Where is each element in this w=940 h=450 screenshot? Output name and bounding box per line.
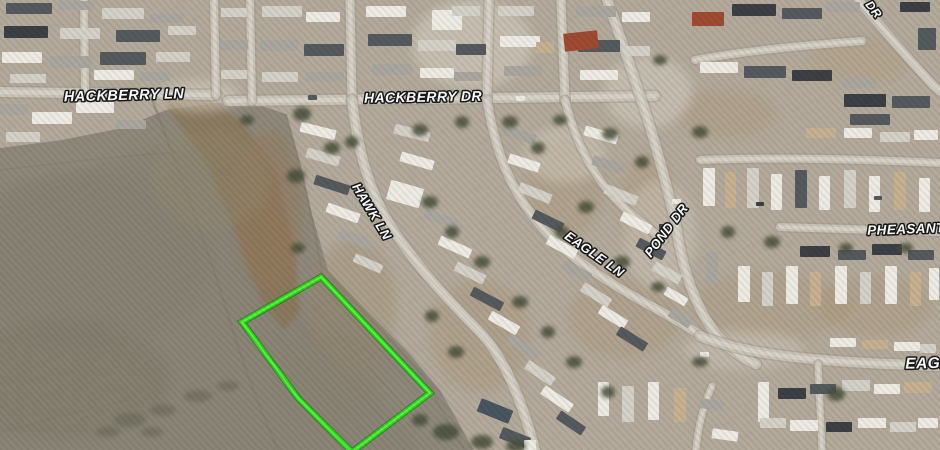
building	[894, 172, 906, 210]
building	[700, 352, 709, 357]
building	[58, 1, 94, 10]
building	[0, 104, 28, 115]
building	[762, 272, 773, 306]
building	[622, 12, 650, 22]
tree	[240, 115, 254, 125]
map-viewport[interactable]: HACKBERRY LNHACKBERRY DRHAWK LNEAGLE LNP…	[0, 0, 940, 450]
building	[6, 3, 52, 14]
building	[220, 40, 248, 50]
building	[914, 130, 938, 140]
building	[100, 52, 146, 65]
building	[308, 95, 317, 100]
building	[904, 382, 932, 393]
building	[732, 4, 776, 16]
building	[60, 28, 100, 39]
building	[725, 172, 736, 208]
building	[786, 266, 798, 304]
building	[860, 272, 871, 304]
building	[756, 202, 764, 206]
building	[94, 70, 134, 80]
building	[504, 66, 542, 76]
building	[221, 8, 247, 17]
building	[102, 8, 144, 19]
street-label-hackberry-dr: HACKBERRY DR	[364, 88, 483, 106]
building	[819, 176, 830, 210]
tree	[566, 356, 582, 368]
building	[536, 42, 554, 53]
tree	[827, 387, 845, 401]
scrub-brush	[150, 404, 176, 416]
building	[842, 78, 876, 88]
tree	[512, 296, 528, 308]
tree	[445, 226, 459, 238]
street-label-hackberry-ln: HACKBERRY LN	[64, 86, 185, 105]
v-252-core	[250, 0, 252, 101]
tree	[287, 169, 305, 183]
building	[116, 120, 146, 129]
scrub-brush	[114, 413, 146, 427]
tree	[293, 107, 311, 121]
tree	[324, 142, 340, 154]
building	[420, 68, 454, 78]
building	[858, 418, 886, 428]
building	[563, 30, 599, 51]
building	[850, 114, 890, 125]
tree	[692, 126, 708, 138]
building	[703, 168, 715, 206]
tree	[653, 55, 667, 65]
building	[900, 2, 930, 12]
building	[304, 44, 344, 56]
tree	[345, 136, 359, 148]
building	[920, 344, 936, 353]
building	[929, 268, 939, 300]
tree	[839, 243, 853, 253]
building	[844, 170, 856, 208]
building	[872, 244, 902, 255]
left-stub-1-core	[84, 0, 85, 92]
tree	[455, 116, 469, 128]
building	[790, 420, 818, 431]
building	[456, 44, 486, 55]
building	[700, 62, 738, 73]
tree	[721, 226, 735, 238]
building	[874, 196, 882, 200]
scrub-brush	[184, 390, 212, 402]
hawk-top-core	[350, 0, 352, 100]
building	[372, 64, 412, 75]
building	[792, 70, 832, 81]
building	[306, 12, 340, 22]
building	[2, 52, 42, 63]
building	[892, 96, 930, 108]
tree	[474, 256, 490, 268]
building	[744, 66, 786, 78]
building	[262, 6, 302, 17]
building	[880, 132, 910, 142]
building	[580, 70, 618, 80]
building	[624, 46, 650, 56]
building	[648, 382, 659, 420]
scrub-brush	[217, 381, 239, 391]
building	[260, 40, 298, 51]
building	[366, 6, 406, 17]
building	[844, 94, 886, 107]
tree	[425, 310, 439, 322]
street-label-eagle: EAGLE	[905, 355, 940, 373]
building	[10, 74, 46, 83]
building	[771, 174, 782, 210]
tree	[553, 115, 567, 125]
tree	[412, 124, 428, 136]
building	[894, 342, 920, 351]
building	[806, 128, 836, 138]
building	[844, 128, 872, 138]
building	[368, 34, 412, 46]
building	[221, 70, 247, 79]
tree	[602, 128, 618, 140]
eagle-top-core	[487, 0, 489, 100]
building	[810, 272, 821, 306]
building	[885, 266, 897, 304]
building	[890, 422, 916, 432]
building	[32, 112, 72, 124]
building	[706, 252, 718, 284]
building	[826, 2, 860, 12]
building	[919, 178, 930, 212]
scrub-brush	[141, 427, 163, 437]
tree	[422, 196, 438, 208]
building	[50, 56, 92, 68]
satellite-map-canvas[interactable]: HACKBERRY LNHACKBERRY DRHAWK LNEAGLE LNP…	[0, 0, 940, 450]
scrub-brush	[96, 427, 120, 437]
building	[692, 12, 724, 26]
building	[760, 418, 786, 428]
building	[622, 386, 634, 422]
building	[140, 72, 170, 81]
building	[674, 388, 686, 422]
building	[800, 246, 830, 257]
tree	[541, 326, 555, 338]
building	[516, 96, 525, 101]
building	[262, 72, 298, 82]
left-stub-2-core	[214, 0, 216, 95]
tree	[433, 424, 459, 440]
building	[874, 384, 900, 394]
building	[826, 422, 852, 432]
building	[918, 28, 936, 50]
building	[782, 8, 822, 19]
building	[116, 30, 160, 42]
building	[6, 132, 40, 142]
tree	[448, 346, 464, 358]
building	[835, 266, 847, 304]
tree	[764, 236, 780, 248]
tree	[635, 156, 649, 168]
tree	[502, 116, 518, 128]
building	[418, 40, 456, 51]
building	[306, 72, 344, 82]
building	[738, 266, 750, 302]
building	[778, 388, 806, 399]
building	[869, 176, 880, 212]
tree	[692, 357, 708, 367]
building	[454, 72, 482, 81]
building	[830, 338, 856, 347]
tree	[578, 201, 594, 213]
tree	[601, 386, 615, 398]
building	[150, 14, 184, 23]
building	[842, 380, 870, 391]
building	[908, 250, 934, 260]
building	[862, 340, 888, 349]
tree	[651, 282, 665, 292]
building	[910, 272, 921, 306]
tree	[471, 435, 493, 449]
tree	[899, 243, 913, 253]
building	[500, 36, 540, 47]
building	[918, 418, 938, 428]
building	[795, 170, 807, 208]
building	[156, 52, 190, 62]
building	[498, 6, 534, 16]
tree	[291, 243, 305, 253]
building	[452, 6, 480, 16]
building	[168, 26, 196, 35]
tree	[412, 414, 428, 426]
terrain-patch	[150, 130, 270, 230]
building	[758, 382, 769, 422]
street-label-pheasant: PHEASANT	[867, 220, 940, 238]
building	[4, 26, 48, 38]
tree	[531, 142, 545, 154]
building	[576, 6, 616, 17]
